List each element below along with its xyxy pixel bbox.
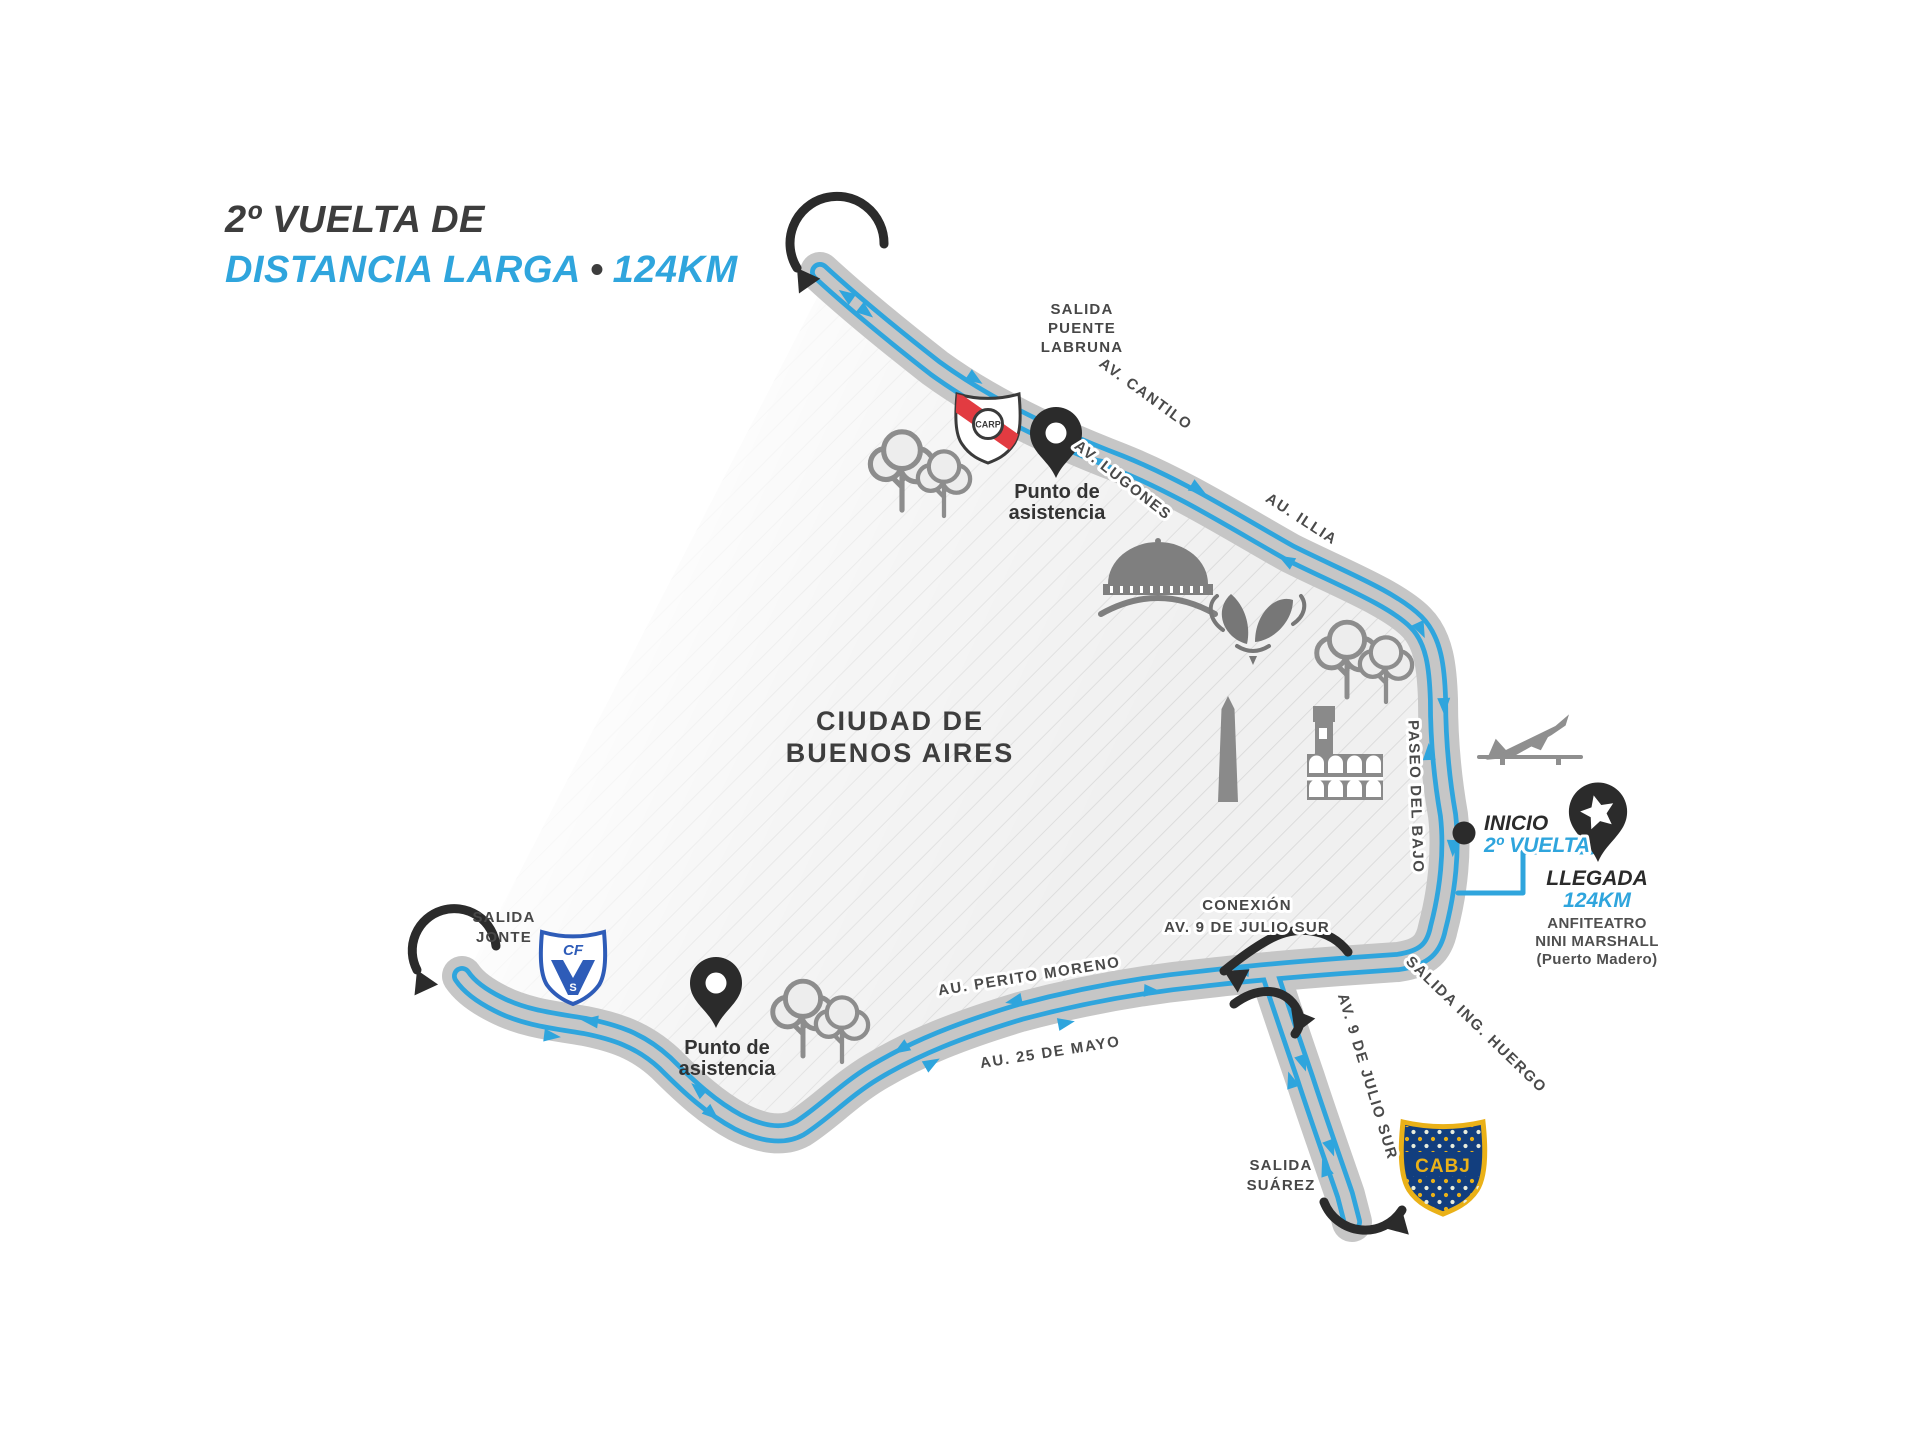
inicio-line1: INICIO [1484,812,1548,835]
velez-cf-letters: CF [563,942,584,959]
salida-suarez-label: SALIDA SUÁREZ [1247,1157,1316,1194]
conexion-line1: CONEXIÓN [1202,896,1292,914]
region-label-line1: CIUDAD DE [816,706,984,736]
assistance-label-south: Punto de asistencia [679,1037,777,1080]
llegada-venue-line2: NINI MARSHALL [1535,933,1659,950]
airplane-icon [1479,714,1581,765]
llegada-venue-line3: (Puerto Madero) [1536,951,1657,968]
inicio-line2: 2º VUELTA [1483,834,1590,857]
map-title-distance: DISTANCIA LARGA [225,249,581,291]
map-title-line2: DISTANCIA LARGA•124KM [225,249,738,291]
race-map: CARP CF S CABJ 2º VUELTA DE DISTANCIA LA… [0,0,1920,1454]
assistance-north-line1: Punto de [1014,481,1100,503]
salida-labruna-line2: PUENTE [1048,320,1116,337]
assistance-south-line2: asistencia [679,1058,777,1080]
salida-suarez-line1: SALIDA [1249,1157,1312,1174]
salida-puente-labruna-label: SALIDA PUENTE LABRUNA [1041,301,1124,356]
boca-cabj-letters: CABJ [1415,1156,1471,1177]
llegada-line2: 124KM [1563,889,1631,912]
salida-jonte-line2: JONTE [476,929,532,946]
salida-labruna-line3: LABRUNA [1041,339,1124,356]
boca-juniors-crest: CABJ [1401,1122,1485,1214]
llegada-line1: LLEGADA [1546,867,1648,890]
conexion-line2: AV. 9 DE JULIO SUR [1164,919,1330,936]
map-title-line1: 2º VUELTA DE [224,199,486,241]
map-title-separator: • [590,249,604,291]
region-label-line2: BUENOS AIRES [786,738,1015,768]
start-dot [1453,822,1476,845]
salida-labruna-line1: SALIDA [1050,301,1113,318]
street-label-salida-ing-huergo: SALIDA ING. HUERGO [1402,953,1550,1097]
velez-s-letter: S [569,982,576,994]
salida-jonte-line1: SALIDA [472,909,535,926]
river-plate-monogram: CARP [975,420,1001,430]
salida-suarez-line2: SUÁREZ [1247,1177,1316,1194]
llegada-venue-line1: ANFITEATRO [1547,915,1647,932]
map-title-km: 124KM [613,249,739,291]
assistance-south-line1: Punto de [684,1037,770,1059]
assistance-label-north: Punto de asistencia [1009,481,1107,524]
assistance-north-line2: asistencia [1009,502,1107,524]
llegada-label: LLEGADA 124KM ANFITEATRO NINI MARSHALL (… [1535,867,1659,968]
street-label-cantilo: AV. CANTILO [1096,355,1196,434]
